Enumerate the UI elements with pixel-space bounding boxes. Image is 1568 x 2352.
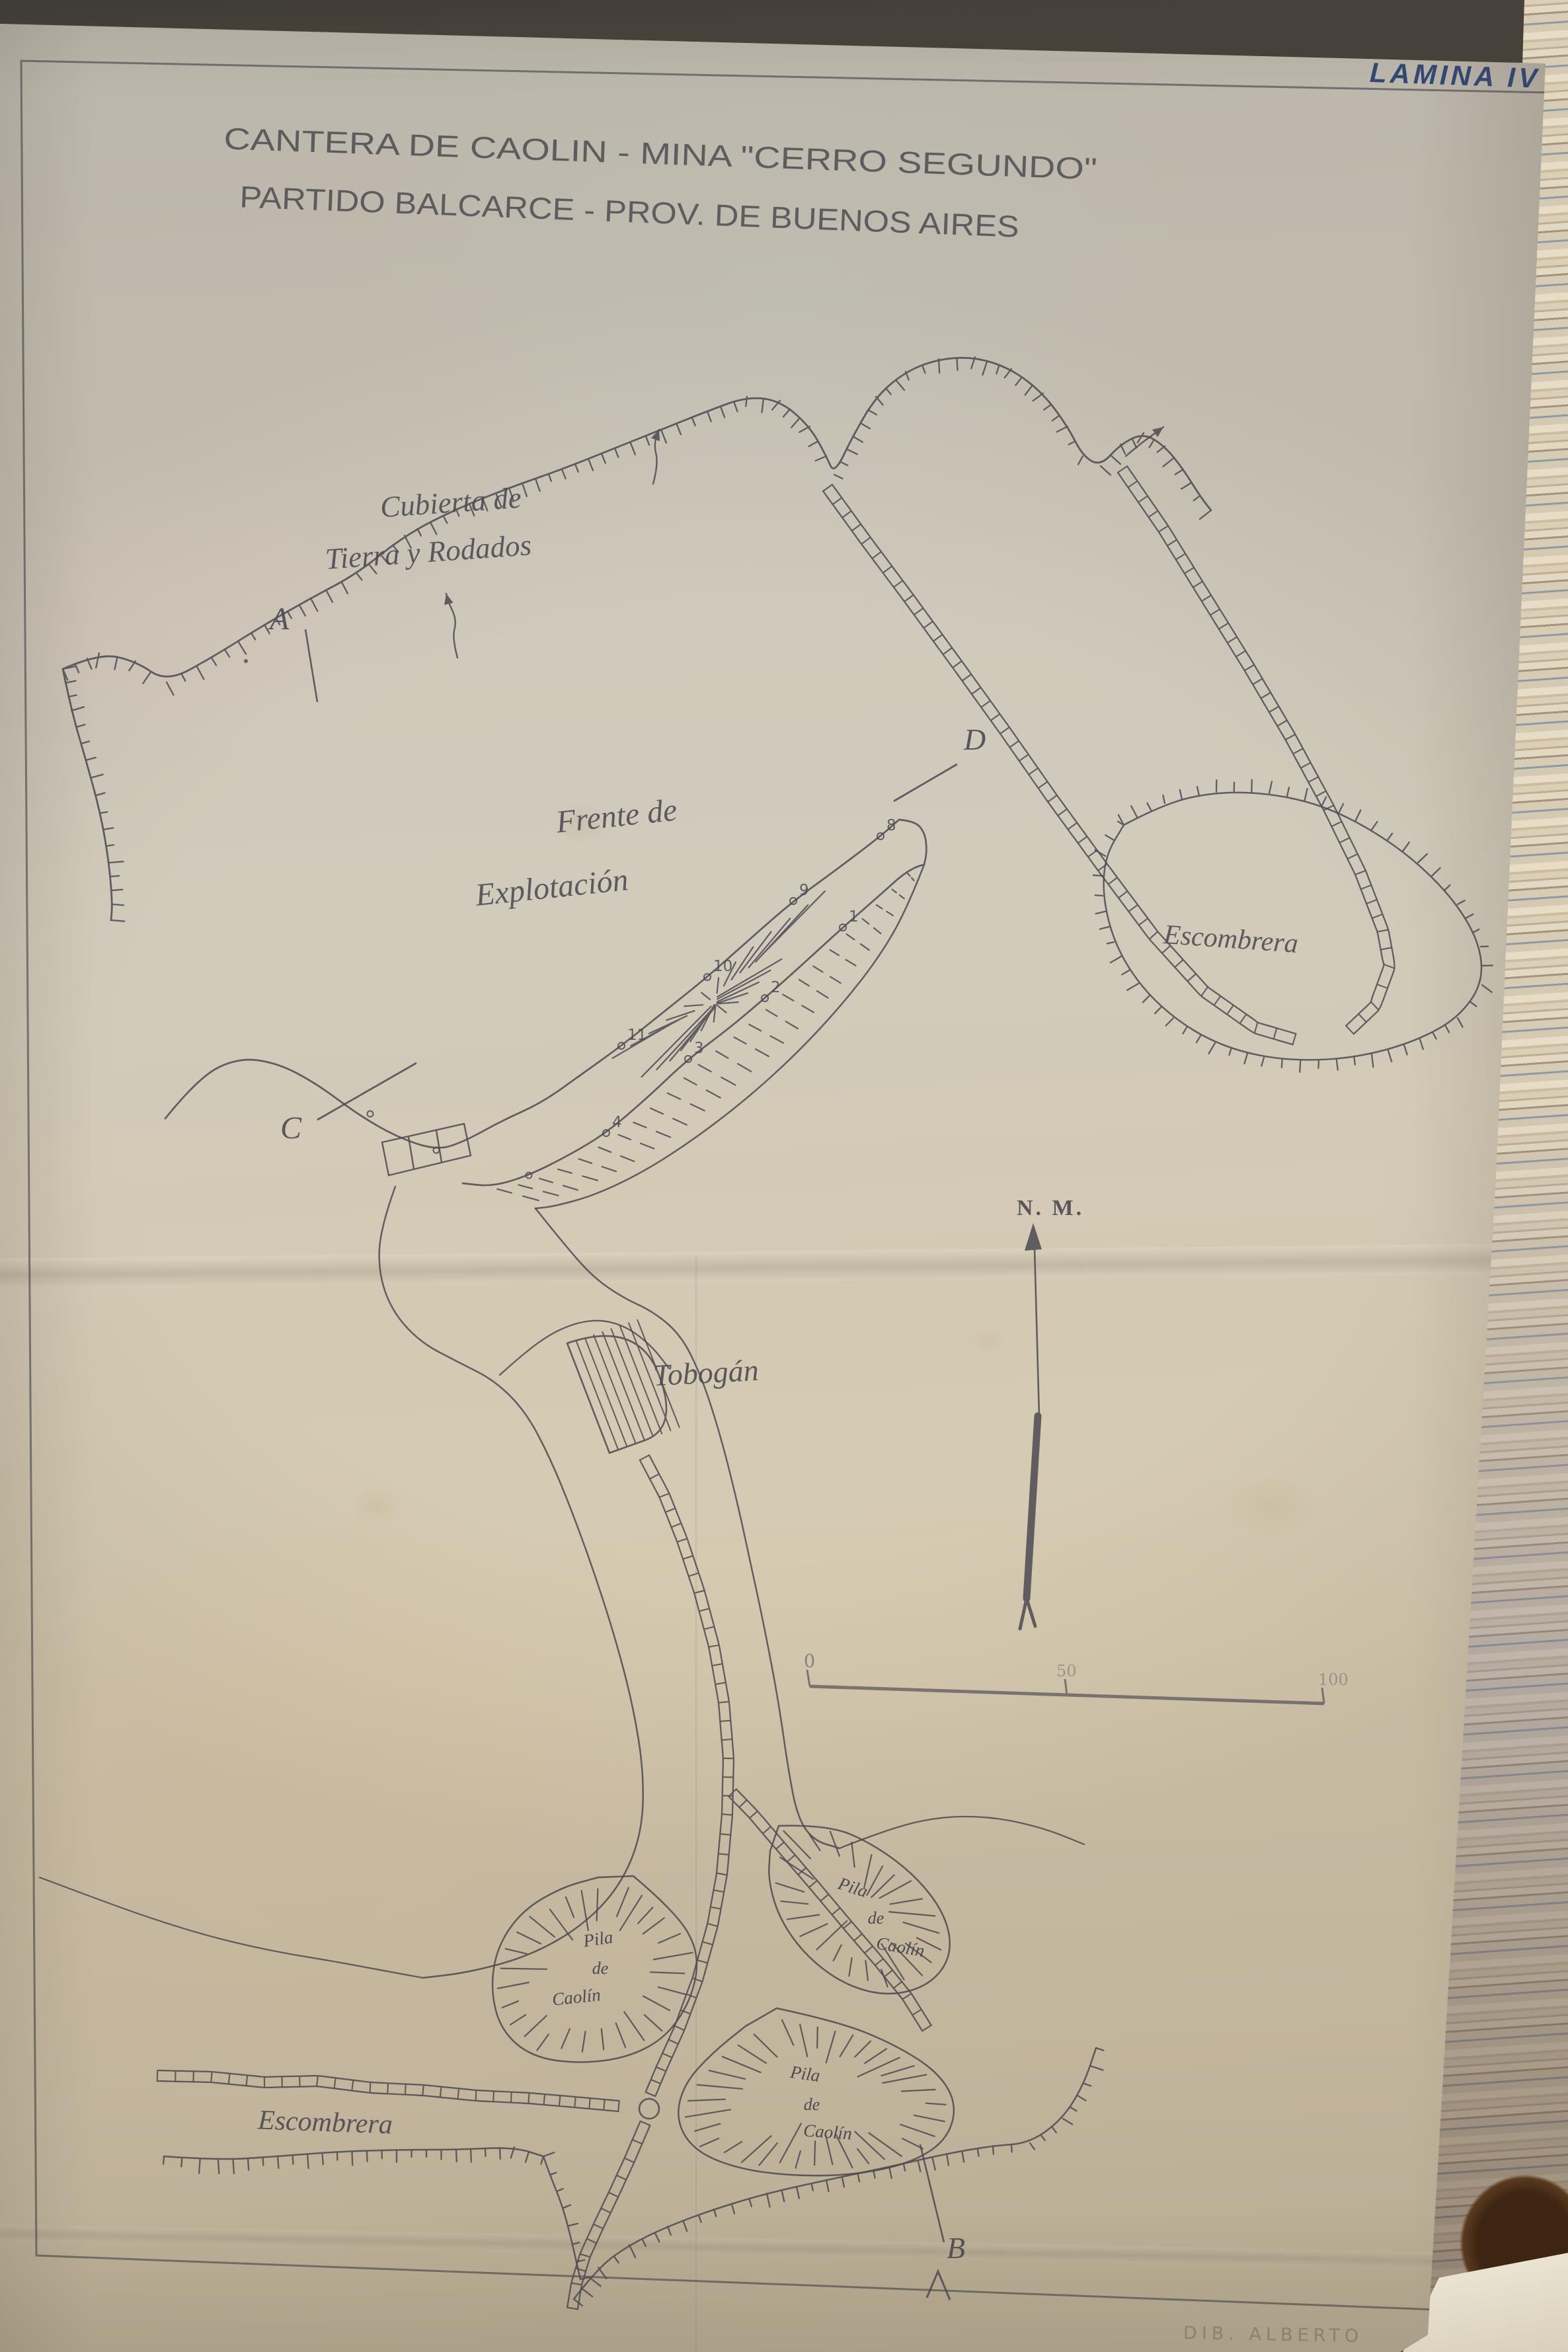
bottom-stamp: DIB. ALBERTO	[1183, 2323, 1364, 2347]
scale-tick-100: 100	[1318, 1670, 1349, 1689]
label-front-line1: Frente de	[554, 793, 679, 840]
svg-text:de: de	[868, 1908, 884, 1928]
cover-arrows	[444, 427, 1163, 658]
svg-text:2: 2	[771, 979, 781, 996]
bottom-rim-hachures	[163, 2048, 1103, 2306]
exploitation-front	[165, 820, 926, 1208]
svg-text:3: 3	[694, 1040, 704, 1057]
svg-text:de: de	[592, 1959, 609, 1978]
svg-text:Pila: Pila	[835, 1873, 870, 1902]
svg-text:Pila: Pila	[789, 2062, 822, 2086]
svg-text:Caolín: Caolín	[551, 1984, 602, 2010]
scale-tick-50: 50	[1056, 1662, 1077, 1680]
svg-text:4: 4	[612, 1114, 622, 1131]
scale-tick-0: 0	[804, 1651, 815, 1672]
kaolin-piles	[492, 1826, 954, 2176]
svg-text:Pila: Pila	[581, 1927, 614, 1951]
pit-canyon-walls	[40, 1187, 1084, 1978]
label-escombrera-right: Escombrera	[1162, 920, 1299, 959]
svg-text:Caolín: Caolín	[875, 1933, 926, 1961]
fold-crease-bottom	[0, 2224, 1568, 2272]
svg-text:9: 9	[799, 882, 809, 899]
map-sheet: LAMINA IV CANTERA DE CAOLIN - MINA "CERR…	[0, 0, 1568, 2352]
marker-a: A	[268, 602, 290, 637]
fold-crease-vertical	[694, 1256, 698, 2352]
front-block	[382, 1124, 471, 1175]
marker-b: B	[947, 2231, 965, 2265]
marker-d-leader	[894, 764, 957, 801]
survey-points: 8910111234	[368, 817, 896, 1179]
map-border-frame	[21, 61, 1548, 2310]
north-arrow	[1020, 1223, 1042, 1629]
scale-bar	[807, 1670, 1324, 1704]
marker-a-dot	[244, 659, 248, 663]
map-title-line1: CANTERA DE CAOLIN - MINA "CERRO SEGUNDO"	[223, 121, 1098, 186]
lamina-stamp: LAMINA IV	[1369, 57, 1541, 94]
marker-d: D	[963, 723, 986, 756]
marker-a-leader	[305, 629, 317, 702]
escombrera-right-outline	[1093, 780, 1493, 1072]
label-escombrera-bottom: Escombrera	[256, 2105, 393, 2140]
label-front-line2: Explotación	[473, 862, 630, 913]
north-label: N. M.	[1017, 1196, 1084, 1220]
marker-c-leader	[317, 1063, 416, 1120]
svg-text:8: 8	[886, 817, 896, 834]
svg-text:1: 1	[849, 908, 859, 925]
marker-b-caret	[927, 2271, 950, 2300]
pile3-label: Pila de Caolín	[789, 2062, 853, 2144]
svg-text:11: 11	[627, 1027, 647, 1044]
label-cover-line2: Tierra y Rodados	[324, 528, 532, 576]
tobogan-chute	[567, 1319, 680, 1453]
pile1-label: Pila de Caolín	[551, 1927, 614, 2010]
marker-b-leader	[920, 2144, 944, 2242]
photo-scene: LAMINA IV CANTERA DE CAOLIN - MINA "CERR…	[0, 0, 1568, 2352]
railway-track-lower	[157, 1455, 931, 2309]
label-cover-line1: Cubierta de	[379, 481, 523, 524]
marker-c: C	[280, 1111, 302, 1146]
fold-crease-horizontal	[0, 1243, 1568, 1288]
svg-text:Caolín: Caolín	[803, 2120, 852, 2143]
label-tobogan: Tobogán	[652, 1353, 760, 1392]
map-drawing: LAMINA IV CANTERA DE CAOLIN - MINA "CERR…	[0, 0, 1568, 2352]
svg-text:de: de	[804, 2095, 820, 2114]
railway-track-upper	[823, 466, 1395, 1044]
svg-text:10: 10	[713, 958, 732, 975]
map-title-line2: PARTIDO BALCARCE - PROV. DE BUENOS AIRES	[239, 179, 1020, 243]
quarry-rim-hachures	[63, 357, 1211, 921]
pile2-label: Pila de Caolín	[835, 1873, 926, 1961]
